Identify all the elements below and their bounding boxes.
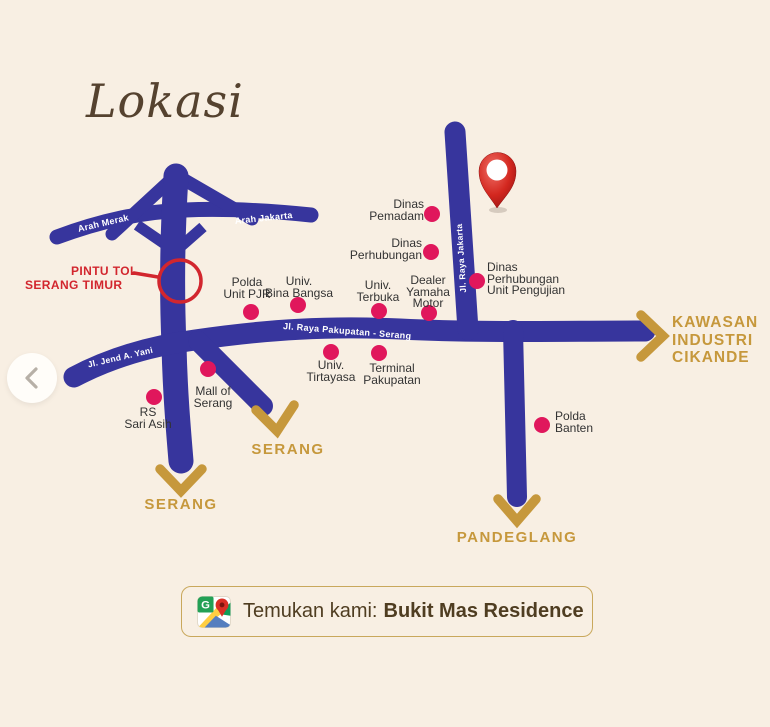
page-title: Lokasi: [86, 74, 244, 128]
location-dot-polda-unit-pjr: [243, 304, 259, 320]
label-line: Tirtayasa: [307, 372, 356, 384]
label-line: Motor: [406, 298, 450, 310]
residence-name: Bukit Mas Residence: [384, 600, 584, 622]
label-line: Unit Pengujian: [487, 285, 565, 297]
direction-label-serang-2: SERANG: [251, 441, 324, 458]
location-label-univ-terbuka: Univ. Terbuka: [357, 280, 400, 303]
toll-gate-label: PINTU TOL SERANG TIMUR: [25, 265, 138, 292]
label-line: Serang: [194, 398, 233, 410]
location-dot-rs-sari-asih: [146, 389, 162, 405]
label-line: Pakupatan: [363, 375, 420, 387]
road-pandeglang-branch: [513, 330, 517, 497]
location-label-univ-bina-bangsa: Univ. Bina Bangsa: [265, 276, 333, 299]
location-label-polda-unit-pjr: Polda Unit PJR: [223, 277, 270, 300]
carousel-prev-button[interactable]: [7, 353, 57, 403]
location-label-unit-pengujian: Dinas Perhubungan Unit Pengujian: [487, 262, 565, 297]
location-map-poster: Arah Merak Arah Jakarta Jl. Raya Jakarta…: [0, 0, 770, 727]
g-letter: G: [201, 599, 210, 611]
location-label-rs-sari-asih: RS Sari Asih: [124, 407, 171, 430]
toll-gate-label-line: SERANG TIMUR: [25, 279, 138, 293]
google-maps-icon: G: [197, 596, 231, 628]
toll-gate-label-line: PINTU TOL: [71, 265, 138, 279]
location-dot-dinas-pemadam: [424, 206, 440, 222]
direction-label-kawasan-industri-cikande: KAWASAN INDUSTRI CIKANDE: [672, 314, 758, 367]
label-line: Terbuka: [357, 292, 400, 304]
location-label-terminal-pakupatan: Terminal Pakupatan: [363, 363, 420, 386]
location-label-dinas-pemadam: Dinas Pemadam: [369, 199, 424, 222]
label-line: Perhubungan: [350, 250, 422, 262]
location-dot-univ-terbuka: [371, 303, 387, 319]
location-label-polda-banten: Polda Banten: [555, 411, 593, 434]
location-dot-terminal-pakupatan: [371, 345, 387, 361]
location-label-dealer-yamaha: Dealer Yamaha Motor: [406, 275, 450, 310]
location-label-univ-tirtayasa: Univ. Tirtayasa: [307, 360, 356, 383]
location-dot-dinas-perhubungan: [423, 244, 439, 260]
location-dot-mall-of-serang: [200, 361, 216, 377]
direction-label-serang: SERANG: [144, 496, 217, 513]
label-line: INDUSTRI: [672, 332, 758, 350]
label-line: Unit PJR: [223, 289, 270, 301]
location-label-dinas-perhubungan: Dinas Perhubungan: [350, 238, 422, 261]
label-line: Sari Asih: [124, 419, 171, 431]
find-us-text: Temukan kami:Bukit Mas Residence: [243, 600, 584, 623]
find-us-prefix: Temukan kami:: [243, 600, 378, 622]
chevron-left-icon: [7, 353, 57, 403]
label-line: Banten: [555, 423, 593, 435]
label-line: Pemadam: [369, 211, 424, 223]
label-line: KAWASAN: [672, 314, 758, 332]
location-dot-unit-pengujian: [469, 273, 485, 289]
direction-label-pandeglang: PANDEGLANG: [457, 529, 578, 546]
label-line: CIKANDE: [672, 349, 758, 367]
find-us-banner: G Temukan kami:Bukit Mas Residence: [181, 586, 593, 637]
location-dot-polda-banten: [534, 417, 550, 433]
road-toll-vertical: [173, 176, 181, 461]
label-line: Bina Bangsa: [265, 288, 333, 300]
location-label-mall-of-serang: Mall of Serang: [194, 386, 233, 409]
map-pin-icon: [479, 153, 516, 214]
